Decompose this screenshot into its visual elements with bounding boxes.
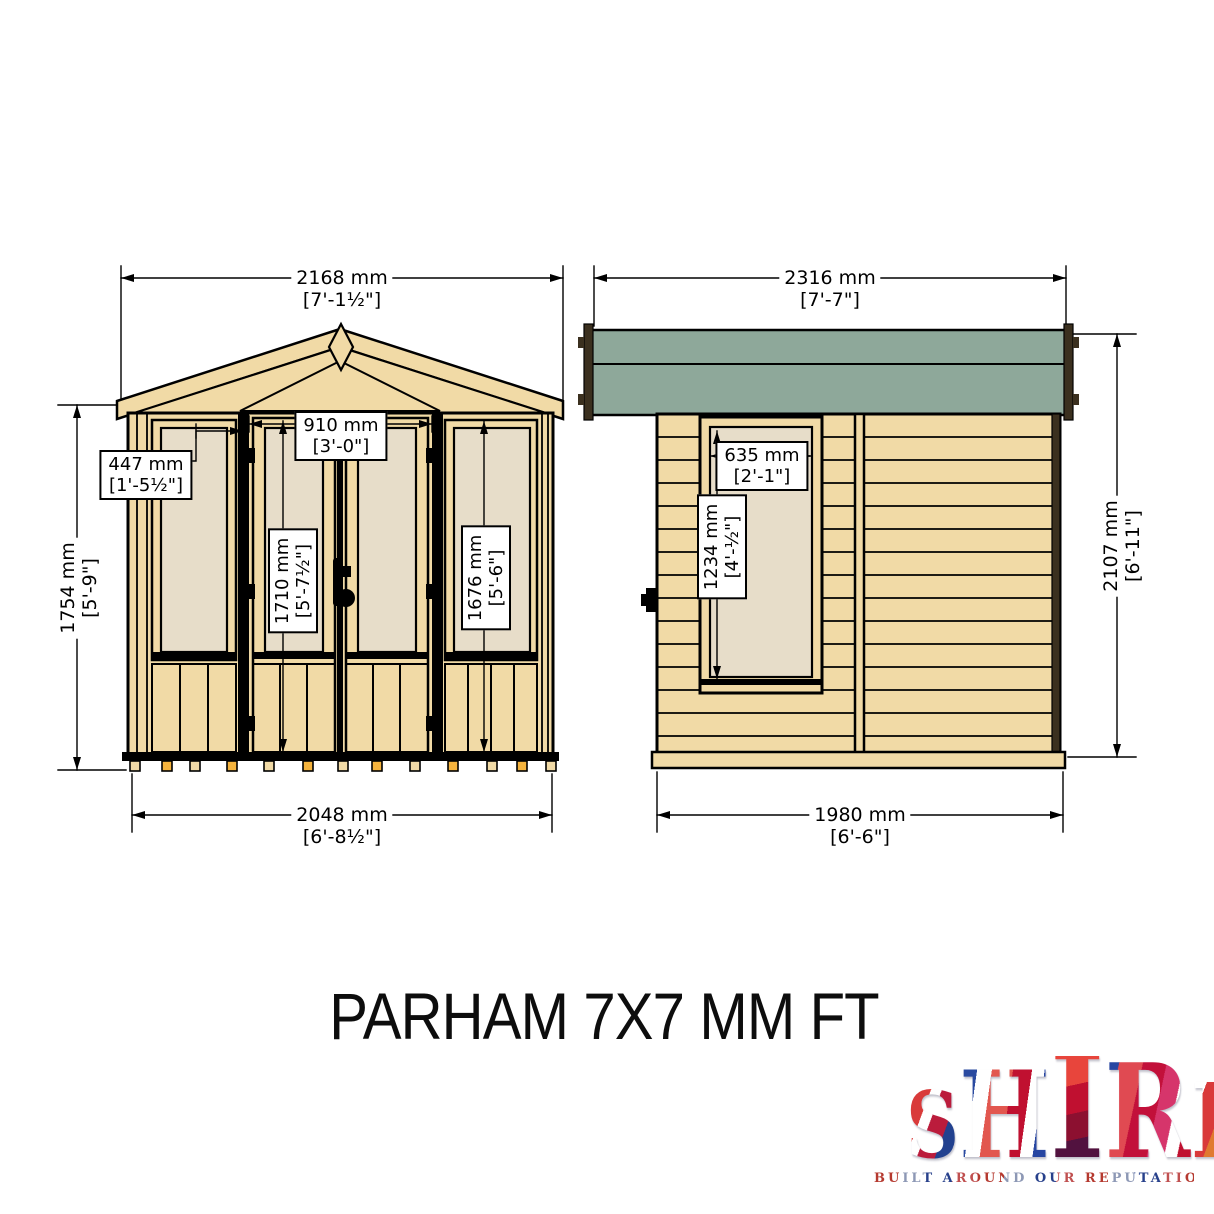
shire-logo-word: SHIRE [906,1056,1162,1168]
front-roof [117,324,563,419]
logo-letter-s: S [906,1074,959,1176]
dim-side-overall-height: 2107 mm [6'-11"] [1100,495,1144,596]
side-rear-edge [1052,414,1060,756]
dim-side-roof-width: 2316 mm [7'-7"] [779,267,880,311]
side-corner-trim [855,414,864,756]
side-elevation [578,266,1136,832]
front-base [122,752,559,761]
dim-front-door-width: 910 mm [3'-0"] [294,411,387,461]
side-door-handle [641,588,657,612]
logo-letter-r: R [1105,1061,1191,1163]
page-title: PARHAM 7X7 MM FT [329,978,879,1054]
dim-front-eaves-height: 1754 mm [5'-9"] [57,537,101,638]
dim-side-window-height: 1234 mm [4'-½"] [697,495,747,600]
logo-letter-h: H [959,1065,1050,1167]
dim-front-side-panel-width: 447 mm [1'-5½"] [99,450,192,500]
shire-logo: SHIRE BUILT AROUND OUR REPUTATION [874,1056,1194,1186]
dim-front-window-height: 1676 mm [5'-6"] [461,526,511,631]
dim-side-window-width: 635 mm [2'-1"] [715,441,808,491]
front-feet [130,761,556,771]
logo-letter-i: I [1050,1056,1105,1158]
dim-front-door-height: 1710 mm [5'-7½"] [268,529,318,634]
dim-side-base-depth: 1980 mm [6'-6"] [809,804,910,848]
dim-front-roof-width: 2168 mm [7'-1½"] [291,267,392,311]
side-roof [578,324,1079,420]
side-base [652,752,1065,768]
dim-front-base-width: 2048 mm [6'-8½"] [291,804,392,848]
drawing-page: 2168 mm [7'-1½"] 2316 mm [7'-7"] 1754 mm… [0,0,1214,1214]
logo-letter-e: E [1191,1071,1214,1173]
